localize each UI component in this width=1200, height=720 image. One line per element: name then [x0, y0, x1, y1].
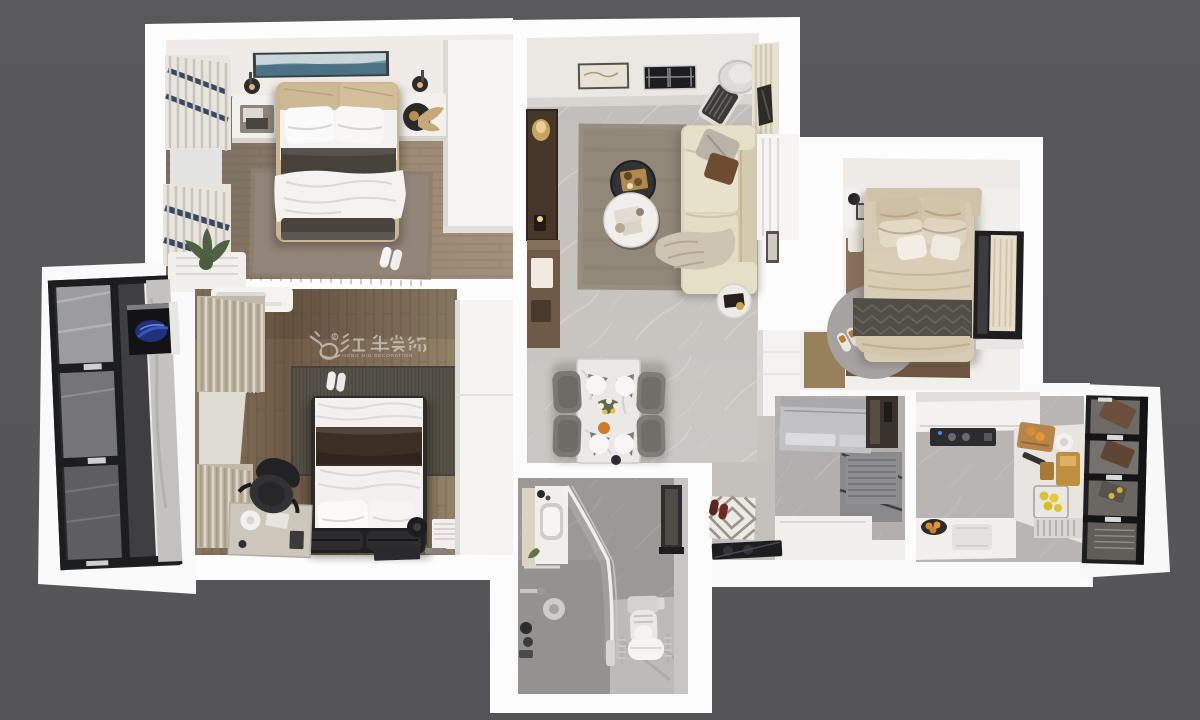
- svg-text:HONG NIU DECORATION: HONG NIU DECORATION: [342, 353, 413, 359]
